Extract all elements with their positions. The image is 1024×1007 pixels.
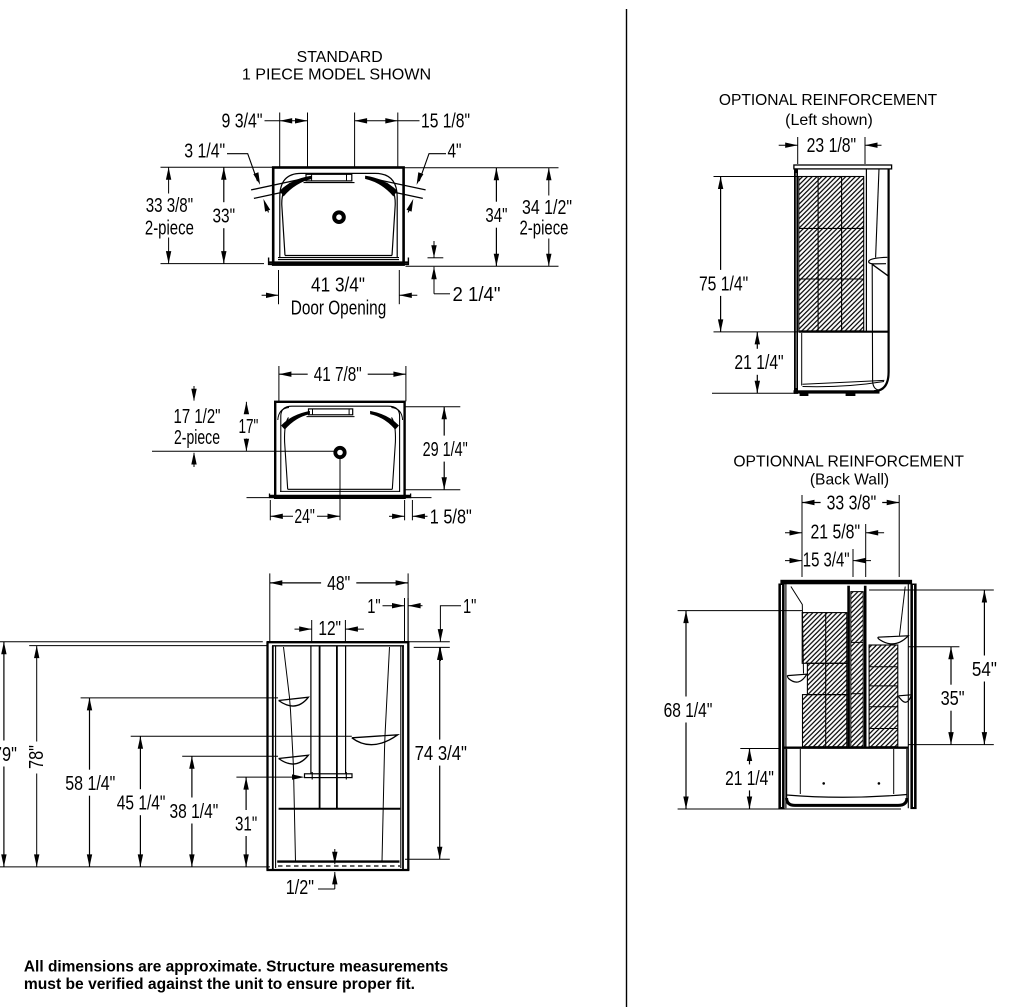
svg-text:Door Opening: Door Opening (291, 296, 387, 319)
svg-text:21 1/4": 21 1/4" (734, 351, 783, 374)
svg-text:4": 4" (448, 140, 462, 163)
svg-text:3 1/4": 3 1/4" (184, 140, 225, 163)
svg-text:45 1/4": 45 1/4" (117, 792, 166, 815)
svg-text:33 3/8": 33 3/8" (827, 491, 877, 514)
svg-text:75 1/4": 75 1/4" (699, 272, 748, 295)
svg-text:1 PIECE MODEL SHOWN: 1 PIECE MODEL SHOWN (242, 66, 431, 83)
svg-text:1": 1" (367, 595, 380, 618)
svg-text:OPTIONAL REINFORCEMENT: OPTIONAL REINFORCEMENT (719, 92, 938, 109)
svg-text:17 1/2": 17 1/2" (174, 405, 221, 428)
svg-text:STANDARD: STANDARD (297, 49, 383, 66)
svg-text:1 5/8": 1 5/8" (430, 505, 472, 528)
svg-text:2-piece: 2-piece (145, 216, 194, 239)
svg-text:79": 79" (0, 743, 17, 766)
svg-text:21 5/8": 21 5/8" (811, 520, 861, 543)
svg-text:54": 54" (972, 658, 997, 681)
svg-text:33": 33" (213, 205, 236, 228)
svg-text:34": 34" (485, 204, 507, 227)
svg-text:1/2": 1/2" (286, 876, 314, 899)
svg-text:33 3/8": 33 3/8" (146, 194, 193, 217)
svg-text:17": 17" (238, 415, 258, 438)
svg-text:29 1/4": 29 1/4" (423, 438, 468, 461)
svg-text:(Back Wall): (Back Wall) (810, 472, 889, 489)
svg-text:2-piece: 2-piece (174, 426, 220, 449)
svg-text:must be verified against the u: must be verified against the unit to ens… (24, 976, 415, 993)
svg-text:38 1/4": 38 1/4" (170, 800, 219, 823)
svg-text:15 1/8": 15 1/8" (421, 110, 470, 133)
svg-text:31": 31" (235, 812, 257, 835)
svg-text:21 1/4": 21 1/4" (725, 767, 774, 790)
svg-text:2-piece: 2-piece (520, 216, 569, 239)
svg-text:78": 78" (25, 745, 48, 769)
svg-text:24": 24" (294, 505, 315, 528)
svg-text:15 3/4": 15 3/4" (803, 548, 850, 571)
svg-text:(Left shown): (Left shown) (785, 112, 873, 129)
svg-text:9 3/4": 9 3/4" (222, 110, 263, 133)
svg-text:58 1/4": 58 1/4" (65, 772, 115, 795)
svg-text:48": 48" (327, 572, 350, 595)
svg-text:23 1/8": 23 1/8" (807, 134, 857, 157)
svg-text:OPTIONNAL REINFORCEMENT: OPTIONNAL REINFORCEMENT (733, 453, 964, 470)
svg-text:41 3/4": 41 3/4" (311, 274, 365, 297)
svg-text:All dimensions are approximate: All dimensions are approximate. Structur… (24, 958, 448, 975)
svg-text:41 7/8": 41 7/8" (314, 363, 362, 386)
svg-text:35": 35" (941, 687, 965, 710)
svg-text:2 1/4": 2 1/4" (453, 283, 501, 306)
svg-text:12": 12" (318, 617, 341, 640)
svg-text:68 1/4": 68 1/4" (664, 699, 713, 722)
svg-text:1": 1" (463, 595, 476, 618)
svg-text:74 3/4": 74 3/4" (415, 742, 467, 765)
